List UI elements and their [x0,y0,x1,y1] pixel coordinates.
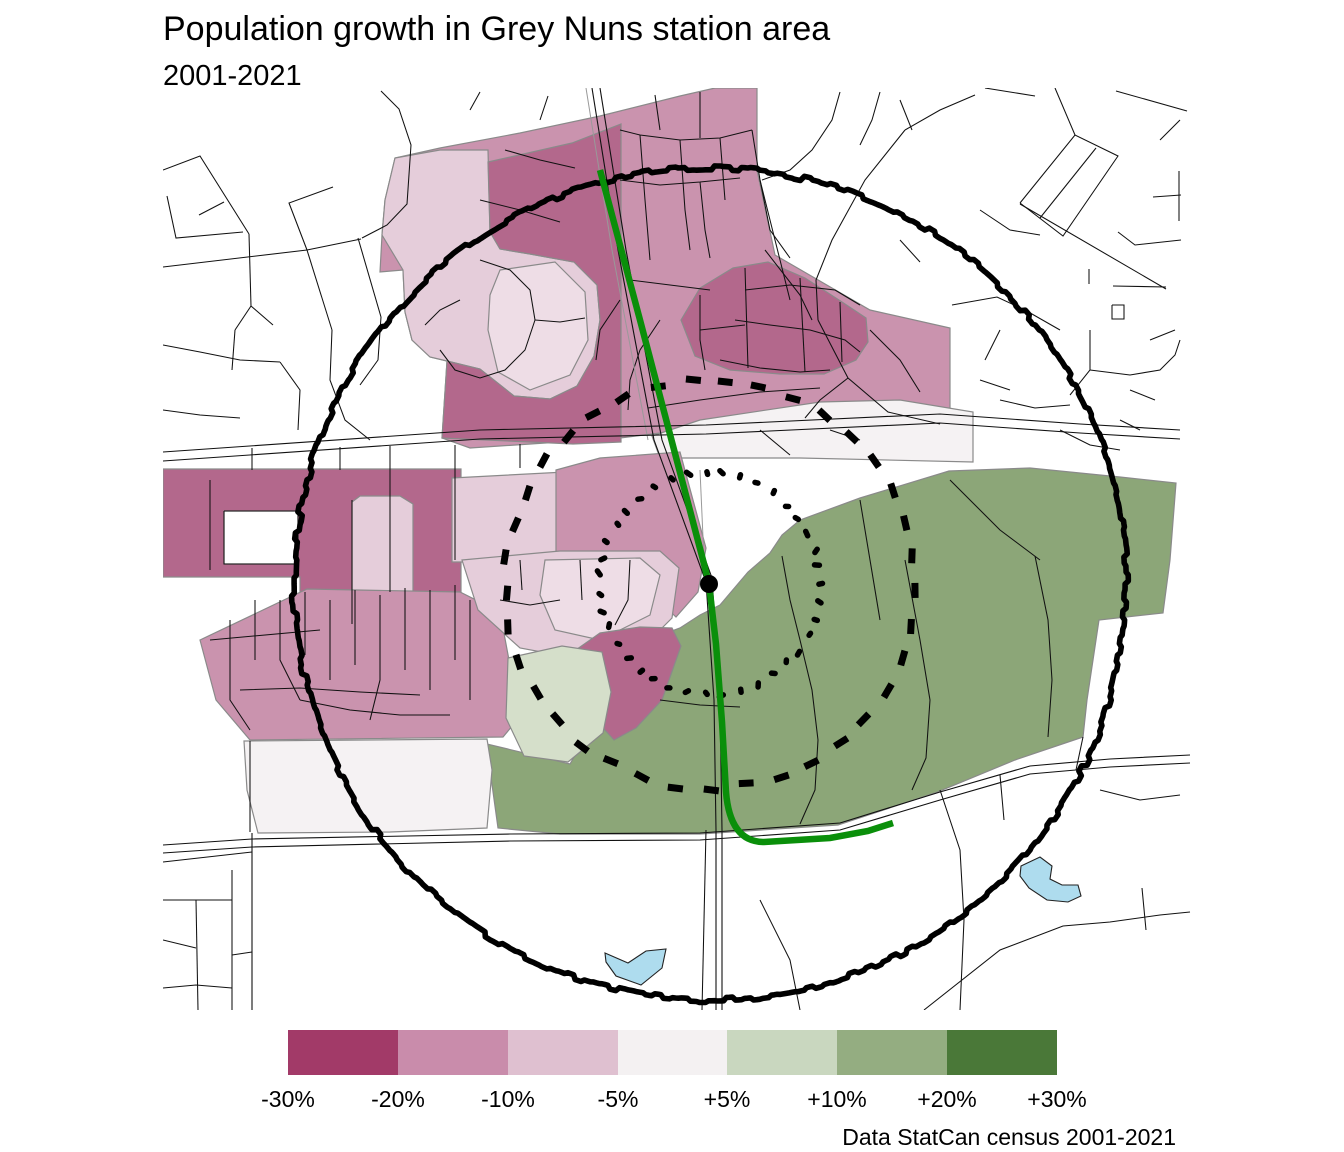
svg-text:-20%: -20% [371,1086,425,1112]
svg-text:2001-2021: 2001-2021 [163,60,302,92]
svg-text:+20%: +20% [917,1086,976,1112]
svg-text:-30%: -30% [261,1086,315,1112]
svg-text:+10%: +10% [807,1086,866,1112]
svg-text:-10%: -10% [481,1086,535,1112]
svg-text:Population growth in Grey Nuns: Population growth in Grey Nuns station a… [163,10,830,48]
svg-text:+5%: +5% [704,1086,751,1112]
svg-text:+30%: +30% [1027,1086,1086,1112]
svg-text:Data StatCan census 2001-2021: Data StatCan census 2001-2021 [842,1124,1176,1150]
svg-text:-5%: -5% [598,1086,639,1112]
